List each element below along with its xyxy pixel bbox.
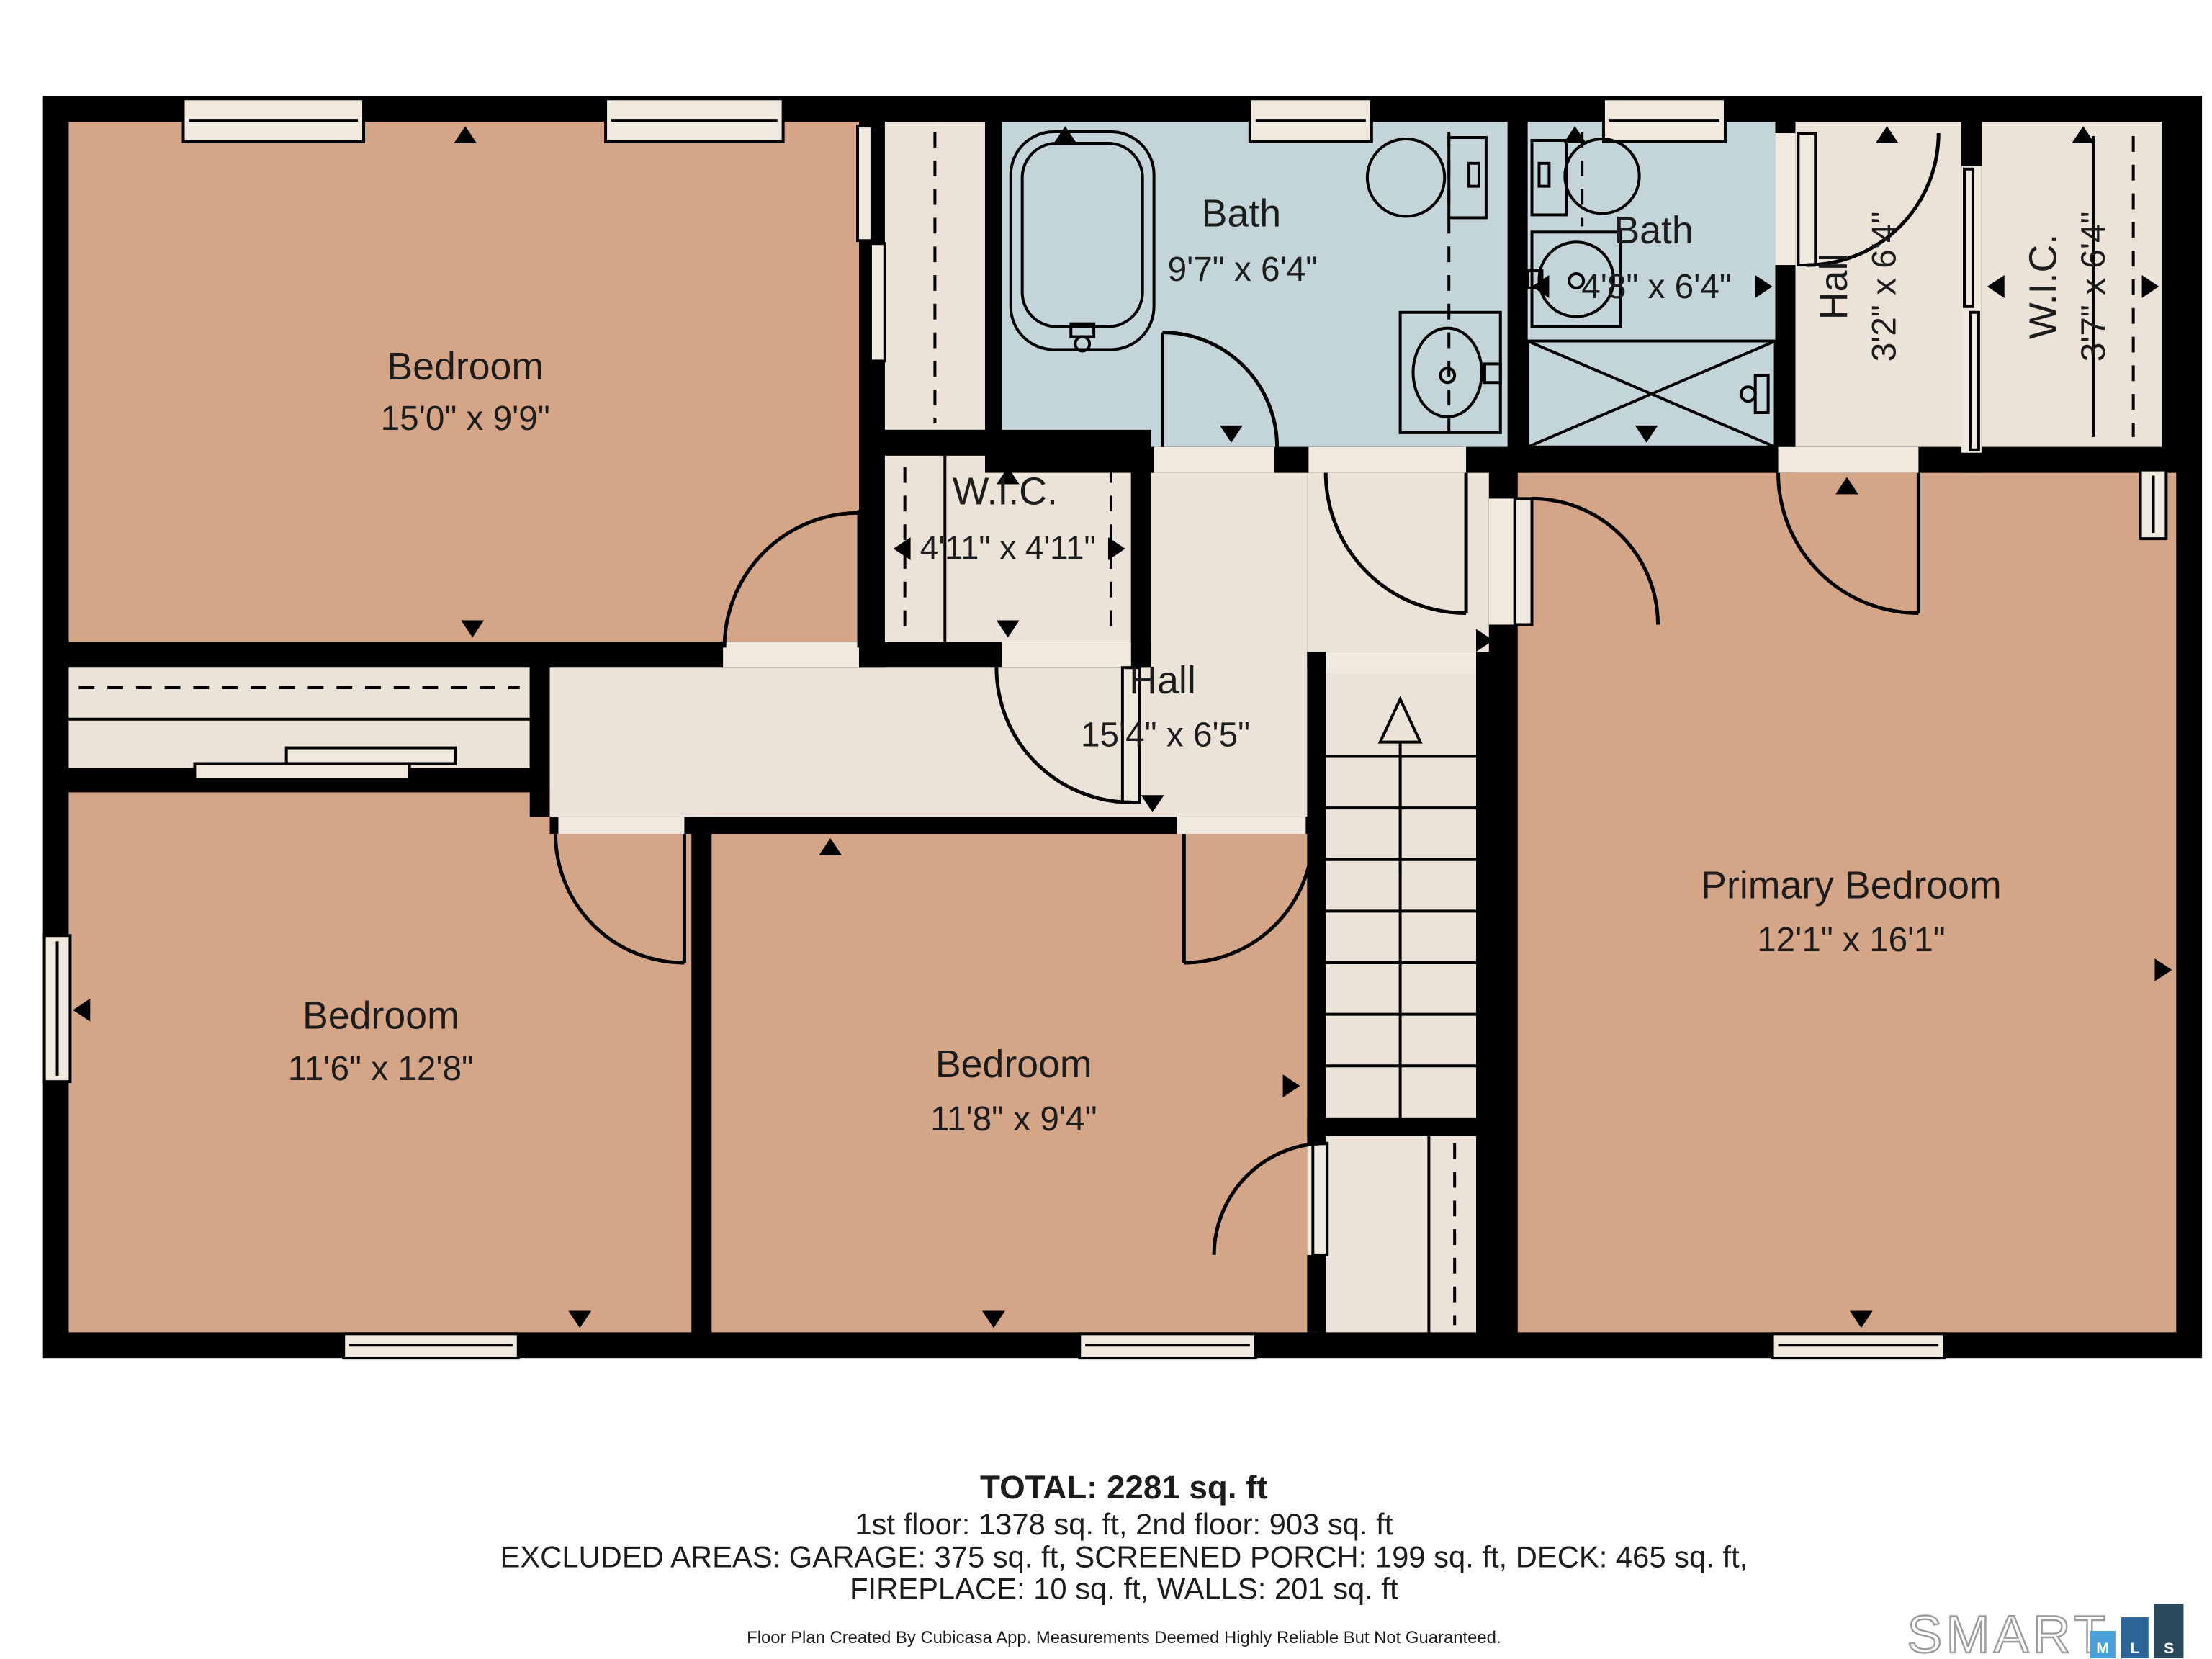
window [45,935,71,1082]
window [1079,1334,1256,1358]
logo-letter-l: L [2130,1639,2139,1657]
dims-bath-small: 4'8" x 6'4" [1581,268,1732,306]
summary-floors: 1st floor: 1378 sq. ft, 2nd floor: 903 s… [855,1507,1393,1541]
room-wic-upper [1982,122,2162,447]
summary-disclaimer: Floor Plan Created By Cubicasa App. Meas… [747,1628,1501,1647]
label-primary-bedroom: Primary Bedroom [1701,863,2002,907]
logo-letter-m: M [2096,1639,2109,1657]
dims-bath-main: 9'7" x 6'4" [1168,251,1318,289]
label-bath-small: Bath [1614,209,1693,252]
window [2141,470,2167,539]
label-wic-small: W.I.C. [953,469,1058,513]
window [606,99,783,142]
logo-wordmark: SMART [1907,1606,2109,1659]
window [1773,1334,1945,1358]
dims-hall-main: 15'4" x 6'5" [1081,716,1250,755]
summary-excluded-1: EXCLUDED AREAS: GARAGE: 375 sq. ft, SCRE… [500,1540,1748,1574]
dims-wic-small: 4'11" x 4'11" [920,529,1096,566]
window [1604,99,1725,142]
summary-excluded-2: FIREPLACE: 10 sq. ft, WALLS: 201 sq. ft [850,1571,1398,1605]
label-hall-upper: Hall [1812,253,1856,320]
window [1250,99,1372,142]
dims-bedroom-bottom-left: 11'6" x 12'8" [288,1050,474,1088]
dims-bedroom-top-left: 15'0" x 9'9" [381,400,550,438]
floor-plan: Bedroom 15'0" x 9'9" Bath 9'7" x 6'4" Ba… [0,0,2212,1659]
label-bath-main: Bath [1202,192,1281,235]
label-wic-upper: W.I.C. [2021,234,2064,339]
label-bedroom-top-left: Bedroom [387,345,544,388]
stair-landing [1307,473,1489,652]
label-bedroom-bottom-left: Bedroom [302,994,459,1038]
label-hall-main: Hall [1129,659,1195,702]
dims-hall-upper: 3'2" x 6'4" [1866,212,1904,362]
floor-plan-page: Bedroom 15'0" x 9'9" Bath 9'7" x 6'4" Ba… [0,0,2212,1659]
summary-total: TOTAL: 2281 sq. ft [980,1469,1268,1506]
window [184,99,364,142]
smartmls-logo: SMART M L S [1907,1604,2183,1659]
label-bedroom-bottom-middle: Bedroom [935,1043,1092,1086]
dims-bedroom-bottom-middle: 11'8" x 9'4" [930,1100,1097,1138]
window [343,1334,518,1358]
dims-primary-bedroom: 12'1" x 16'1" [1757,921,1946,959]
logo-letter-s: S [2164,1639,2174,1657]
dims-wic-upper: 3'7" x 6'4" [2074,212,2113,362]
summary-block: TOTAL: 2281 sq. ft 1st floor: 1378 sq. f… [500,1469,1748,1647]
